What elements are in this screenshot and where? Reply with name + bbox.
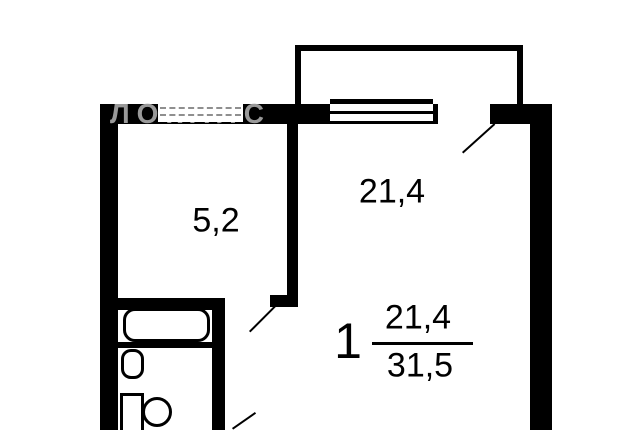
toilet-tank-icon (120, 393, 144, 430)
left-wall (100, 104, 118, 430)
entrance-door-swing-icon (232, 412, 256, 430)
window-bottom-frame (330, 121, 433, 124)
balcony-door-swing-icon (462, 123, 495, 153)
small-room-area-label: 5,2 (192, 202, 239, 241)
small-room-window-icon (158, 103, 243, 122)
living-area-label: 21,4 (385, 299, 451, 338)
room-count-label: 1 (334, 312, 362, 370)
window-dash-line (160, 107, 241, 109)
balcony-door-opening (438, 104, 490, 124)
room-divider-wall (287, 124, 298, 307)
floor-plan: ЛОКАЛС 5,2 21,4 1 21,4 31,5 (0, 0, 640, 430)
living-room-window-icon (330, 104, 433, 124)
balcony-outline (295, 45, 523, 104)
area-fraction-line (372, 342, 473, 345)
bathroom-partition-wall (117, 342, 212, 348)
room-divider-wall-foot (270, 295, 288, 307)
window-mid-frame (330, 111, 433, 114)
toilet-bowl-icon (142, 397, 172, 427)
bathtub-icon (123, 308, 210, 342)
living-room-area-label: 21,4 (359, 173, 425, 212)
window-dash-line (160, 114, 241, 116)
room-door-swing-icon (249, 304, 277, 332)
sink-icon (121, 349, 144, 379)
bathroom-right-wall (212, 298, 225, 430)
right-wall (530, 104, 552, 430)
total-area-label: 31,5 (387, 347, 453, 386)
